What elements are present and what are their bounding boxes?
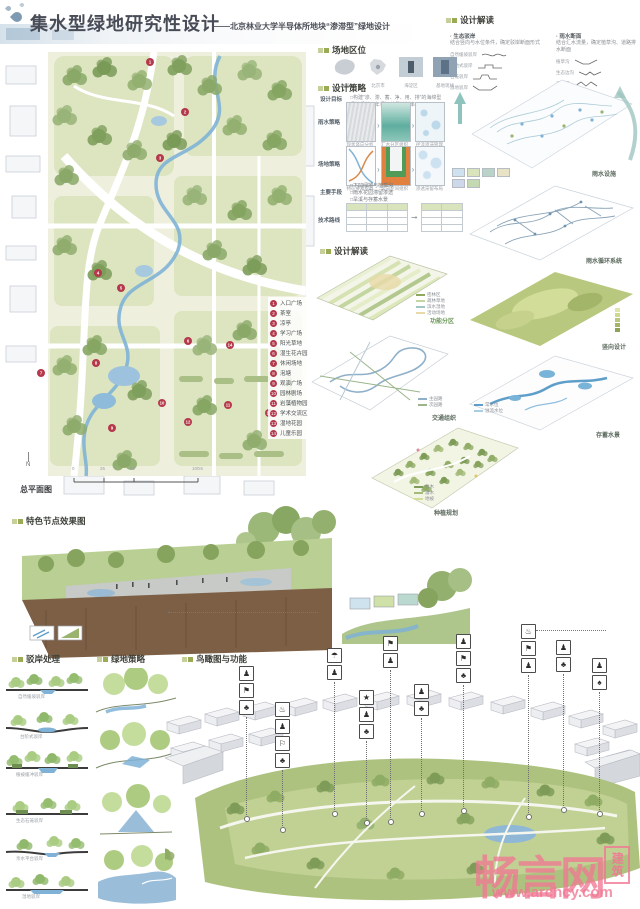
legend-number: 1: [270, 300, 277, 307]
legend-swatch: [474, 404, 483, 406]
mini-chips-row: [350, 594, 418, 609]
header-bullet-icon: [182, 657, 187, 662]
site-panel-2: [381, 146, 411, 186]
legend-swatch: [416, 294, 425, 296]
site-panel-3: [415, 146, 445, 186]
rain-panel-3: [415, 102, 445, 142]
scale-bar: [70, 474, 210, 488]
legend-swatch: [414, 486, 423, 488]
scale-tick-0: 0: [72, 466, 75, 471]
site-strategy-label: 场地策略: [318, 160, 340, 168]
interpret-right-item: 植草沟: [556, 59, 570, 65]
bank-caption-6: 湿地驳岸: [22, 894, 40, 900]
activity-pictogram-icon: ⚑: [383, 636, 398, 651]
legend-item: 1入口广场: [270, 298, 308, 308]
legend-swatch: [418, 404, 427, 406]
section-header-birdseye: 鸟瞰图与功能: [182, 653, 247, 665]
leader-line: [246, 717, 247, 815]
location-caption: 北京市: [366, 83, 390, 89]
plan-caption: 总平面图: [20, 484, 52, 495]
legend-item: 14儿童乐园: [270, 428, 308, 438]
means-item: □雨水花园滞留渗透: [350, 189, 393, 196]
legend-number: 13: [270, 420, 277, 427]
activity-pictogram-icon: ⚐: [275, 736, 290, 751]
legend-swatch: [414, 498, 423, 500]
legend-swatch: [418, 398, 427, 400]
interpret-right-title: · 雨水断面: [556, 32, 640, 40]
func-mini-legend: 密林区 疏林草地 滨水湿地 活动场地: [416, 292, 445, 316]
interpret-left-desc: 结合竖向与水位条件，确定驳岸断面形式: [450, 40, 542, 47]
activity-pictogram-icon: ♣: [275, 753, 290, 768]
leader-line: [528, 675, 529, 813]
leader-end-dot: [280, 827, 286, 833]
activity-pictogram-icon: ★: [359, 690, 374, 705]
interpret-left-title: · 生态驳岸: [450, 32, 542, 40]
section-header-site-location: 场地区位: [318, 44, 366, 56]
activity-pictogram-icon: ♣: [556, 657, 571, 672]
means-item: □下凹绿地与植草沟: [350, 182, 393, 189]
leader-end-dot: [561, 807, 567, 813]
legend-chip: [482, 168, 495, 177]
waterdrop-icon-tiny: [19, 2, 25, 8]
route-table-left: [346, 203, 408, 232]
activity-pictogram-icon: ♟: [383, 653, 398, 668]
legend-number: 12: [270, 410, 277, 417]
activity-pictogram-icon: ♟: [521, 658, 536, 673]
legend-number: 10: [270, 390, 277, 397]
legend-number: 4: [270, 330, 277, 337]
dotted-connector-h1: [168, 612, 318, 613]
legend-swatch: [416, 300, 425, 302]
rain-strategy-panels: 现状竖向分析 › 汇水分区组织 › 径流渗滞管理: [346, 102, 445, 148]
bank-caption-4: 生态石笼驳岸: [16, 818, 43, 824]
header-bullet-icon: [12, 657, 17, 662]
legend-number: 7: [270, 360, 277, 367]
activity-pictogram-icon: ♣: [456, 668, 471, 683]
activity-pictogram-icon: ⚑: [456, 651, 471, 666]
section-swale-icon: [574, 58, 598, 66]
bank-caption-5: 亲水平台驳岸: [16, 856, 43, 862]
bank-caption-2: 台阶式驳岸: [20, 734, 43, 740]
bank-caption-1: 自然缓坡驳岸: [18, 694, 45, 700]
leader-line: [463, 685, 464, 807]
legend-item: 2茶室: [270, 308, 308, 318]
leader-line: [282, 770, 283, 826]
axon-caption-planting: 种植规划: [434, 508, 458, 517]
traffic-mini-legend: 主园路 次园路: [418, 396, 443, 408]
leader-line: [421, 718, 422, 810]
location-caption: 海淀区: [398, 83, 424, 89]
route-label: 技术路线: [318, 216, 340, 224]
header-bullet-icon: [318, 86, 323, 91]
activity-pictogram-icon: ♟: [327, 665, 342, 680]
axon-caption-terrain: 竖向设计: [602, 342, 626, 351]
activity-pictogram-icon: ⚑: [239, 683, 254, 698]
leader-end-dot: [388, 819, 394, 825]
axon-caption-functional-zoning: 功能分区: [430, 316, 454, 325]
bank-sections: [4, 668, 90, 906]
activity-pictogram-icon: ♟: [592, 658, 607, 673]
axon-rain-facilities: [452, 72, 640, 176]
header-bullet-icon: [324, 86, 329, 91]
legend-number: 14: [270, 430, 277, 437]
water-mini-legend: 常水位 溢流水位: [474, 402, 503, 414]
means-item: □旱溪与存蓄水景: [350, 196, 393, 203]
north-arrow: N: [26, 452, 30, 468]
header-bullet-icon: [318, 48, 323, 53]
legend-number: 3: [270, 320, 277, 327]
legend-item: 3凉亭: [270, 318, 308, 328]
activity-pictogram-icon: ♨: [521, 624, 536, 639]
activity-pictogram-icon: ♟: [414, 684, 429, 699]
scale-tick-50: 50: [130, 466, 135, 471]
legend-number: 6: [270, 350, 277, 357]
arrow-right-icon: ›: [412, 165, 415, 174]
arrow-right-icon: ›: [412, 121, 415, 130]
axon-terrain: [455, 268, 640, 350]
pictogram-stack: ♟ ⚑ ♣: [239, 666, 254, 822]
route-arrow-icon: ➞: [411, 213, 418, 222]
district-map-icon: [398, 56, 424, 78]
pictogram-stack: ☂ ♟: [327, 648, 342, 817]
goal-label: 设计目标: [320, 95, 342, 103]
leader-line: [334, 682, 335, 810]
header-bullet-icon: [446, 18, 451, 23]
site-panel-caption: 渗透滞留布局: [415, 186, 443, 192]
legend-swatch: [416, 306, 425, 308]
watermark-seal: 建筑: [604, 846, 630, 884]
pictogram-stack: ♟ ♣: [414, 684, 429, 817]
axon-caption-rain-circulation: 雨水循环系统: [586, 256, 622, 265]
section-wave-icon: [481, 51, 507, 59]
activity-pictogram-icon: ☂: [327, 648, 342, 663]
poster-root: { "title": { "main": "集水型绿地研究性设计", "subt…: [0, 0, 640, 909]
svg-text:12: 12: [186, 420, 191, 425]
leader-line: [599, 692, 600, 810]
arrow-right-icon: ›: [377, 165, 380, 174]
section-header-banks: 驳岸处理: [12, 653, 60, 665]
leader-end-dot: [597, 811, 603, 817]
legend-chip: [467, 168, 480, 177]
section-header-design-strategy: 设计策略: [318, 82, 366, 94]
pictogram-stack: ♨ ⚑ ♟: [521, 624, 536, 820]
leader-end-dot: [526, 814, 532, 820]
beijing-map-icon: [366, 56, 390, 78]
pictogram-stack: ★ ♟ ♣: [359, 690, 374, 826]
legend-number: 2: [270, 310, 277, 317]
node-render-small: [332, 556, 474, 644]
pictogram-stack: ⚑ ♟: [383, 636, 398, 825]
activity-pictogram-icon: ♣: [239, 700, 254, 715]
interpret-left-item: 台地式驳岸: [450, 63, 473, 69]
leader-end-dot: [332, 811, 338, 817]
activity-pictogram-icon: ♟: [456, 634, 471, 649]
activity-pictogram-icon: ♠: [592, 675, 607, 690]
header-bullet-icon: [188, 657, 193, 662]
legend-number: 9: [270, 380, 277, 387]
route-flowchart: ➞: [346, 203, 463, 232]
arrow-right-icon: ›: [377, 121, 380, 130]
leader-end-dot: [419, 811, 425, 817]
activity-pictogram-icon: ♟: [275, 719, 290, 734]
activity-pictogram-icon: ♣: [414, 701, 429, 716]
section-header-interpret-top: 设计解读: [446, 14, 494, 26]
dotted-connector-h2: [536, 630, 606, 631]
axon-rain-circulation: [455, 182, 640, 264]
activity-pictogram-icon: ♟: [359, 707, 374, 722]
interpret-right-desc: 结合汇水流量，确定植草沟、道路排水断面: [556, 40, 640, 54]
page-subtitle: ——北京林业大学半导体所地块“渗滞型”绿地设计: [214, 21, 390, 32]
header-bullet-icon: [18, 657, 23, 662]
svg-text:11: 11: [226, 403, 231, 408]
china-map-icon: [332, 56, 358, 78]
section-header-greens: 绿地策略: [97, 653, 145, 665]
activity-pictogram-icon: ⚑: [521, 641, 536, 656]
legend-number: 8: [270, 370, 277, 377]
node-render-main: [6, 498, 336, 658]
activity-pictogram-icon: ♟: [556, 640, 571, 655]
header-bullet-icon: [97, 657, 102, 662]
axon-caption-rain-facilities: 雨水设施: [592, 169, 616, 178]
pictogram-stack: ♨ ♟ ⚐ ♣: [275, 702, 290, 833]
waterdrop-icon-small: [5, 5, 12, 12]
leader-end-dot: [244, 816, 250, 822]
activity-pictogram-icon: ♨: [275, 702, 290, 717]
section-steps-icon: [477, 62, 503, 70]
leader-line: [390, 670, 391, 818]
header-bullet-icon: [324, 48, 329, 53]
activity-pictogram-icon: ♣: [359, 724, 374, 739]
bank-caption-3: 植被缓冲驳岸: [16, 772, 43, 778]
scale-tick-100: 100m: [192, 466, 203, 471]
svg-text:14: 14: [228, 343, 233, 348]
legend-number: 5: [270, 340, 277, 347]
leader-line: [563, 674, 564, 806]
means-label: 主要手段: [320, 188, 342, 196]
plant-mini-legend: 乔木 灌木 地被: [414, 484, 434, 502]
watermark-url[interactable]: www.archcy.com: [492, 884, 613, 901]
site-panel-1: [346, 146, 376, 186]
legend-chip: [497, 168, 510, 177]
pictogram-stack: ♟ ⚑ ♣: [456, 634, 471, 814]
legend-item: 13湿地花园: [270, 418, 308, 428]
legend-number: 11: [270, 400, 277, 407]
header-bullet-icon: [103, 657, 108, 662]
activity-pictogram-icon: ♟: [239, 666, 254, 681]
waterdrop-icon-large: [10, 10, 24, 24]
legend-swatch: [474, 410, 483, 412]
legend-swatch: [416, 312, 425, 314]
rain-panel-1: [346, 102, 376, 142]
axon-planting: [358, 420, 526, 516]
leader-end-dot: [461, 808, 467, 814]
interpret-left-item: 自然缓坡驳岸: [450, 52, 477, 58]
scale-tick-25: 25: [100, 466, 105, 471]
header-bullet-icon: [452, 18, 457, 23]
page-title: 集水型绿地研究性设计: [30, 10, 220, 36]
leader-line: [366, 741, 367, 819]
legend-swatch: [414, 492, 423, 494]
rain-panel-2: [381, 102, 411, 142]
pictogram-stack: ♟ ♠: [592, 658, 607, 817]
leader-end-dot: [364, 820, 370, 826]
svg-text:10: 10: [160, 401, 165, 406]
legend-chip: [452, 168, 465, 177]
axon-caption-stored-water: 存蓄水景: [596, 430, 620, 439]
pictogram-stack: ♟ ♣: [556, 640, 571, 813]
rain-strategy-label: 雨水策略: [318, 118, 340, 126]
